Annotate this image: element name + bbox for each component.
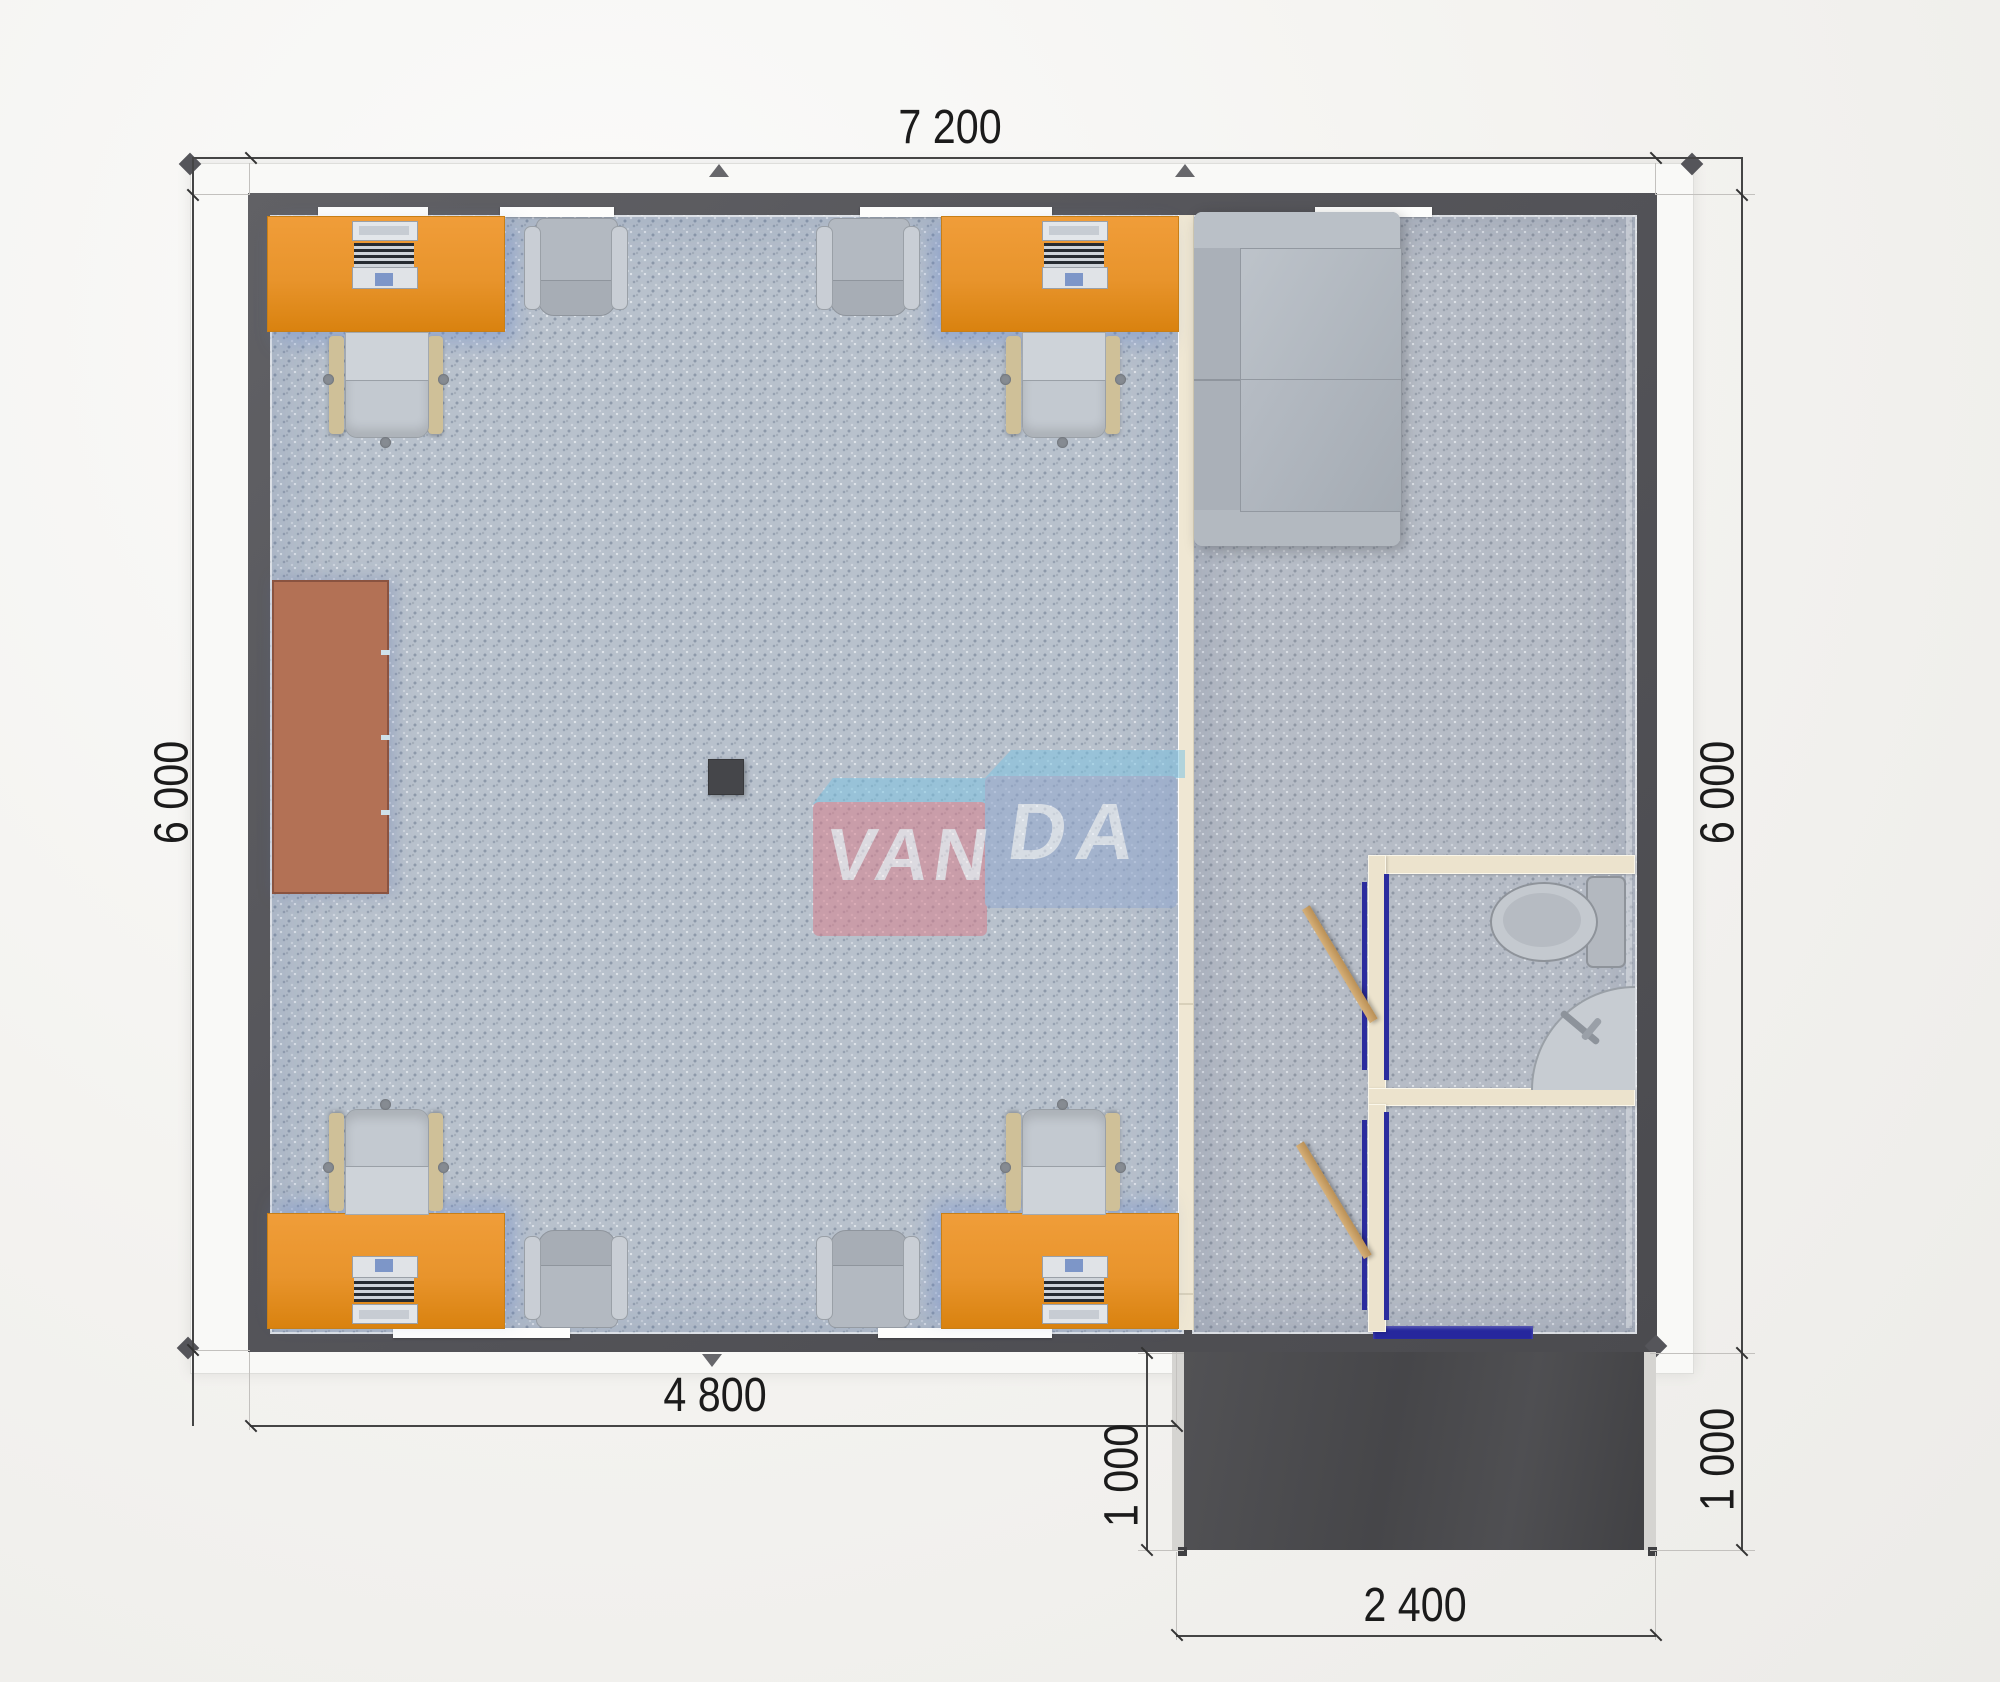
extension-line [249,1352,250,1430]
logo-text-left: VAN [821,812,999,897]
logo-flap-right [985,750,1185,778]
extension-line [192,194,250,195]
floor-plan-canvas: VAN DA 7 200 6 000 6 000 4 800 1 000 1 0… [0,0,2000,1682]
storage-table [272,580,389,894]
desk-bottom-left [268,1214,504,1328]
door-frame-upper-inner [1384,874,1389,1080]
dimension-label-top-width: 7 200 [821,100,1079,155]
module-joint-marker-top-1 [709,164,729,177]
office-chair-top-right [1004,332,1122,442]
porch-rail-left [1172,1352,1184,1550]
dimension-label-porch-height-left: 1 000 [1095,1347,1150,1605]
laptop-keyboard [354,1278,414,1302]
dimension-line-top [192,157,1742,159]
armchair-bottom-2 [816,1228,920,1328]
laptop-touchpad [1065,273,1083,286]
dimension-line-porch-bottom [1176,1635,1656,1637]
laptop-lid [1042,221,1108,241]
vanda-watermark: VAN DA [813,746,1193,941]
laptop-top-right [1042,221,1108,289]
armchair-bottom-1 [524,1228,628,1328]
laptop-keyboard [1044,243,1104,267]
office-chair-bottom-left [327,1105,445,1215]
laptop-keyboard [354,243,414,267]
extension-line [249,163,250,195]
laptop-top-left [352,221,418,289]
laptop-bottom-right [1042,1256,1108,1324]
window-top-1 [318,207,428,217]
laptop-lid [352,1304,418,1324]
dimension-label-right-height: 6 000 [1691,664,1746,922]
extension-line [1176,1552,1177,1640]
partition-seam [1179,1003,1193,1005]
entrance-porch [1184,1352,1644,1550]
porch-corner-tick-left [1178,1547,1187,1556]
laptop-bottom-left [352,1256,418,1324]
extension-line [1655,163,1656,195]
door-frame-upper-outer [1362,882,1367,1070]
desk-top-right [942,217,1178,331]
extension-line [1655,1552,1656,1640]
laptop-lid [1042,1304,1108,1324]
toilet [1490,882,1598,962]
dimension-label-porch-height-right: 1 000 [1691,1331,1746,1589]
office-chair-top-left [327,332,445,442]
module-joint-marker-bottom [702,1354,722,1367]
logo-flap-left [813,778,993,804]
door-frame-lower-inner [1384,1112,1389,1320]
bathroom-north-wall [1368,855,1635,874]
entrance-door [1373,1326,1533,1339]
window-bottom-2 [878,1328,1052,1338]
laptop-keyboard [1044,1278,1104,1302]
sofa [1194,212,1400,546]
laptop-touchpad [375,273,393,286]
dimension-label-porch-width: 2 400 [1286,1578,1544,1633]
module-joint-marker-top-2 [1175,164,1195,177]
armchair-top-2 [816,218,920,318]
door-frame-lower-outer [1362,1120,1367,1310]
floor-box [708,759,744,795]
armchair-top-1 [524,218,628,318]
laptop-touchpad [375,1259,393,1272]
dimension-label-bottom-left-width: 4 800 [586,1368,844,1423]
partition-seam [1179,1293,1193,1295]
porch-rail-right [1644,1352,1656,1550]
window-bottom-1 [393,1328,570,1338]
office-chair-bottom-right [1004,1105,1122,1215]
dimension-line-bottom-left [250,1425,1177,1427]
desk-top-left [268,217,504,331]
laptop-touchpad [1065,1259,1083,1272]
logo-text-right: DA [1003,786,1151,878]
extension-line [1176,1352,1177,1430]
extension-line [192,1350,250,1351]
bathroom-middle-wall [1368,1088,1635,1106]
window-top-3 [860,207,1052,217]
window-top-2 [500,207,614,217]
laptop-lid [352,221,418,241]
dimension-label-left-height: 6 000 [145,664,200,922]
desk-bottom-right [942,1214,1178,1328]
right-wall-highlight [1626,217,1632,1328]
